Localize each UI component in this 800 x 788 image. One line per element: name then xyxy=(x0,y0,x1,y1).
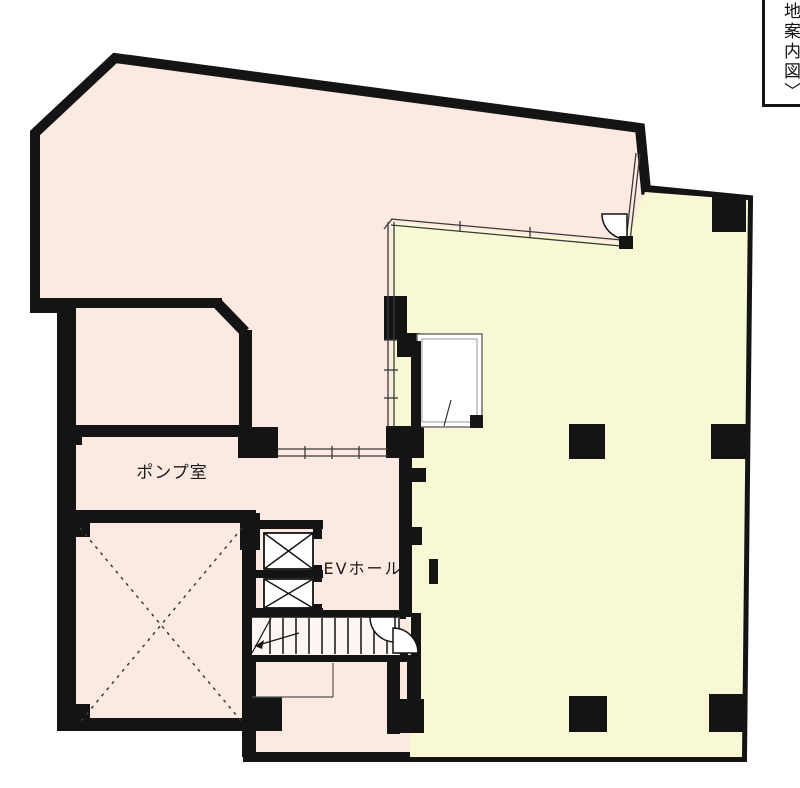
service-shaft-box xyxy=(411,334,483,428)
ev-hall-label: EVホール xyxy=(323,559,402,578)
elevator-car-icon xyxy=(264,579,313,608)
floor-plan-stage: ポンプ室 EVホール 地案内図〉 xyxy=(0,0,800,788)
floor-plan-svg: ポンプ室 EVホール xyxy=(0,0,800,788)
tenant-area xyxy=(392,192,748,757)
map-link[interactable]: 地案内図〉 xyxy=(762,0,800,107)
pump-room-label: ポンプ室 xyxy=(136,463,208,483)
elevator-car-icon xyxy=(264,533,313,569)
